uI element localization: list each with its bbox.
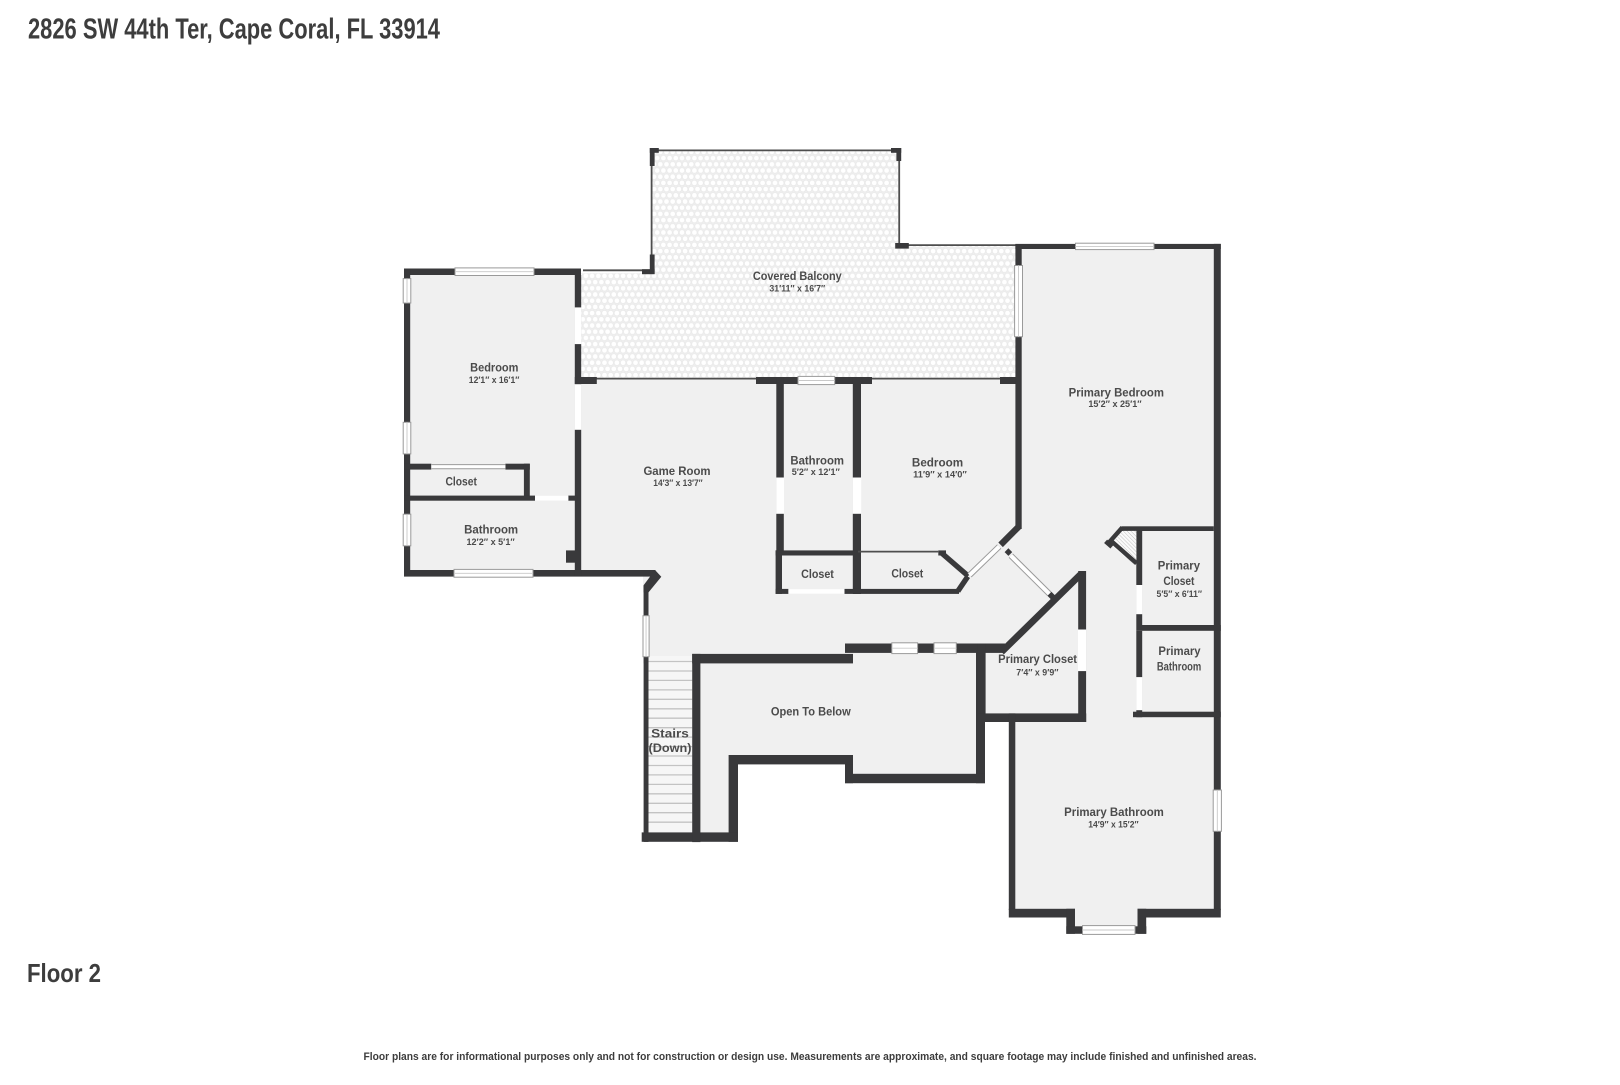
svg-text:Primary: Primary (1158, 558, 1200, 572)
svg-text:31′11″ x 16′7″: 31′11″ x 16′7″ (769, 284, 825, 294)
svg-text:Closet: Closet (801, 567, 834, 581)
svg-text:Bathroom: Bathroom (790, 454, 844, 468)
svg-text:12′1″ x 16′1″: 12′1″ x 16′1″ (469, 375, 520, 385)
svg-text:14′9″ x 15′2″: 14′9″ x 15′2″ (1088, 820, 1139, 830)
svg-text:Primary Bathroom: Primary Bathroom (1064, 805, 1164, 819)
svg-text:Primary Closet: Primary Closet (998, 652, 1077, 666)
svg-text:Bathroom: Bathroom (464, 523, 518, 537)
svg-text:11′9″ x 14′0″: 11′9″ x 14′0″ (913, 470, 967, 480)
svg-text:Bathroom: Bathroom (1157, 660, 1201, 674)
svg-text:12′2″ x 5′1″: 12′2″ x 5′1″ (467, 537, 516, 547)
svg-text:Floor 2: Floor 2 (27, 958, 101, 988)
svg-text:7′4″ x 9′9″: 7′4″ x 9′9″ (1016, 668, 1059, 678)
svg-text:(Down): (Down) (649, 741, 692, 755)
svg-text:Closet: Closet (891, 567, 923, 581)
svg-text:Covered Balcony: Covered Balcony (753, 269, 842, 283)
svg-text:Floor plans are for informatio: Floor plans are for informational purpos… (364, 1051, 1257, 1063)
svg-text:Stairs: Stairs (651, 727, 689, 741)
svg-text:5′5″ x 6′11″: 5′5″ x 6′11″ (1157, 589, 1203, 599)
svg-text:5′2″ x 12′1″: 5′2″ x 12′1″ (792, 467, 841, 477)
svg-text:14′3″ x 13′7″: 14′3″ x 13′7″ (653, 478, 703, 488)
svg-text:Primary Bedroom: Primary Bedroom (1069, 386, 1164, 400)
svg-text:Bedroom: Bedroom (912, 455, 963, 469)
svg-text:Primary: Primary (1158, 644, 1200, 658)
svg-text:Closet: Closet (1163, 574, 1194, 588)
svg-text:Bedroom: Bedroom (470, 360, 518, 374)
svg-text:15′2″ x 25′1″: 15′2″ x 25′1″ (1088, 399, 1142, 409)
svg-text:2826 SW 44th Ter, Cape Coral,: 2826 SW 44th Ter, Cape Coral, FL 33914 (28, 14, 440, 46)
svg-text:Closet: Closet (446, 475, 477, 489)
svg-text:Open To Below: Open To Below (771, 705, 851, 719)
svg-text:Game Room: Game Room (643, 464, 710, 478)
